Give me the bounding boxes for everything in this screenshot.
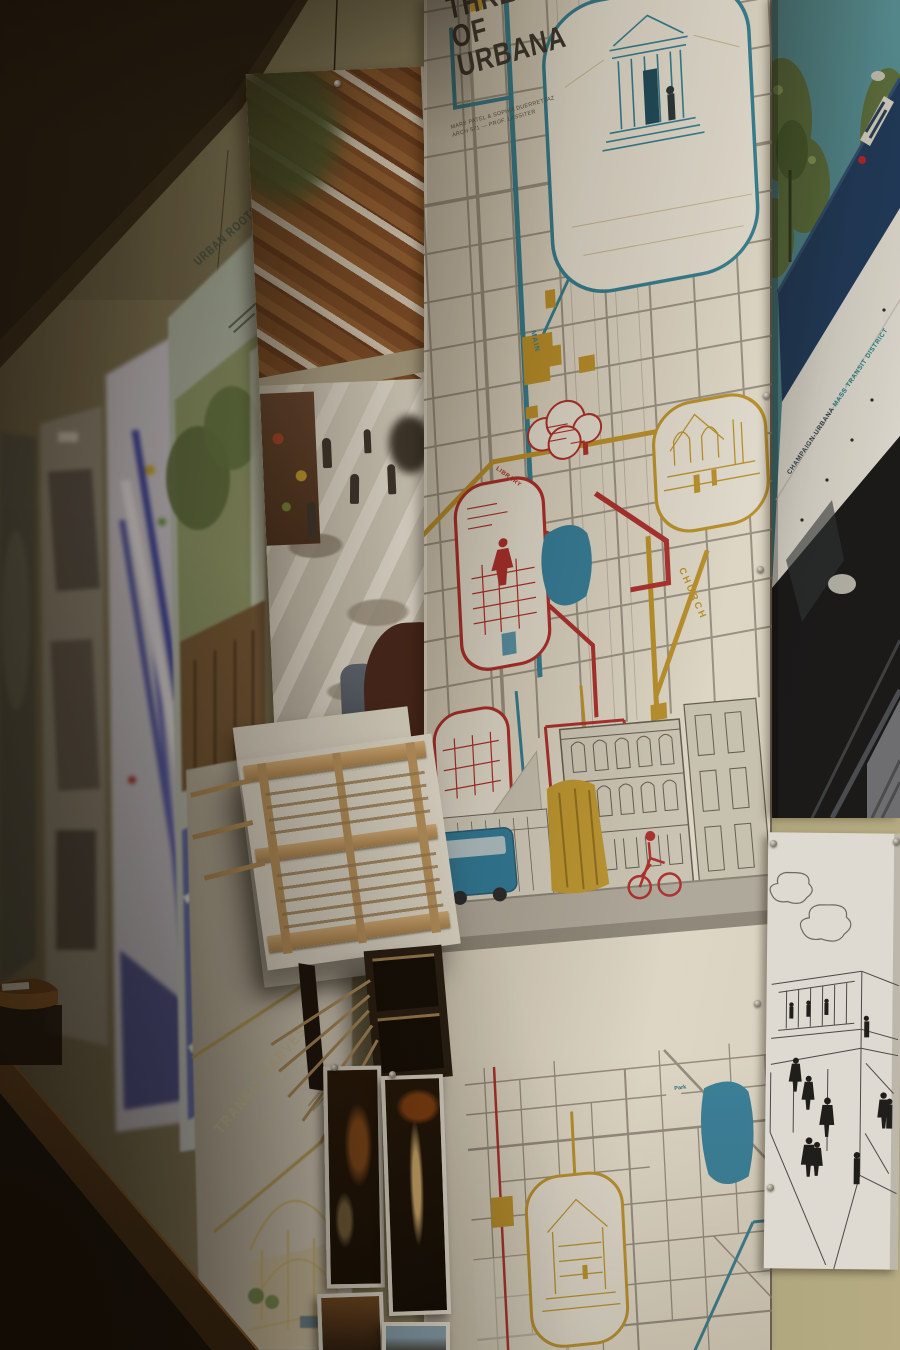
- poster-bus-illustration: CHAMPAIGN-URBANA MASS TRANSIT DISTRICT: [772, 0, 900, 818]
- pushpin: [754, 1000, 761, 1007]
- pinned-photo: [317, 1292, 385, 1350]
- pedestrian-figure: [363, 429, 371, 453]
- pushpin: [331, 1064, 338, 1071]
- studio-wall-photo: URBAN ROOTS TRANSIT HARVEST: [0, 0, 900, 1350]
- pinned-photo: [382, 1322, 450, 1350]
- model-dark-box: [364, 945, 453, 1083]
- perspective-sketch: [764, 832, 900, 1269]
- pushpin: [770, 840, 777, 847]
- callout-church: [652, 389, 770, 538]
- pinned-photo: [381, 1074, 451, 1316]
- pedestrian-figure: [322, 438, 332, 468]
- figure-silhouettes: [787, 998, 893, 1184]
- poster-threads-of-urbana: THREADS OF URBANA MARY PATEL & SOPHIA DU…: [424, 0, 772, 1350]
- pedestrian-figure: [307, 502, 318, 538]
- sketch-drawing: [764, 832, 900, 1269]
- lighting-overlay-top: [0, 0, 470, 140]
- pushpin: [757, 566, 764, 573]
- pedestrian-figure: [387, 464, 396, 494]
- model-shelf-slot: [372, 953, 438, 1011]
- headlight: [828, 574, 856, 594]
- cloud-outline: [770, 872, 852, 941]
- model-shelf-slot: [377, 1013, 444, 1073]
- callout-house: [525, 1170, 630, 1350]
- pinned-photo: [323, 1066, 385, 1289]
- pushpin: [893, 838, 900, 845]
- pond-park: [699, 1079, 756, 1186]
- lower-map: [463, 1034, 772, 1350]
- pedestrian-figure: [350, 474, 359, 504]
- poster-market-rendering: [246, 66, 454, 771]
- pushpin: [767, 1184, 774, 1191]
- pushpin: [389, 1071, 396, 1078]
- pushpin: [763, 392, 770, 399]
- urbana-map-graphic: [424, 0, 772, 1350]
